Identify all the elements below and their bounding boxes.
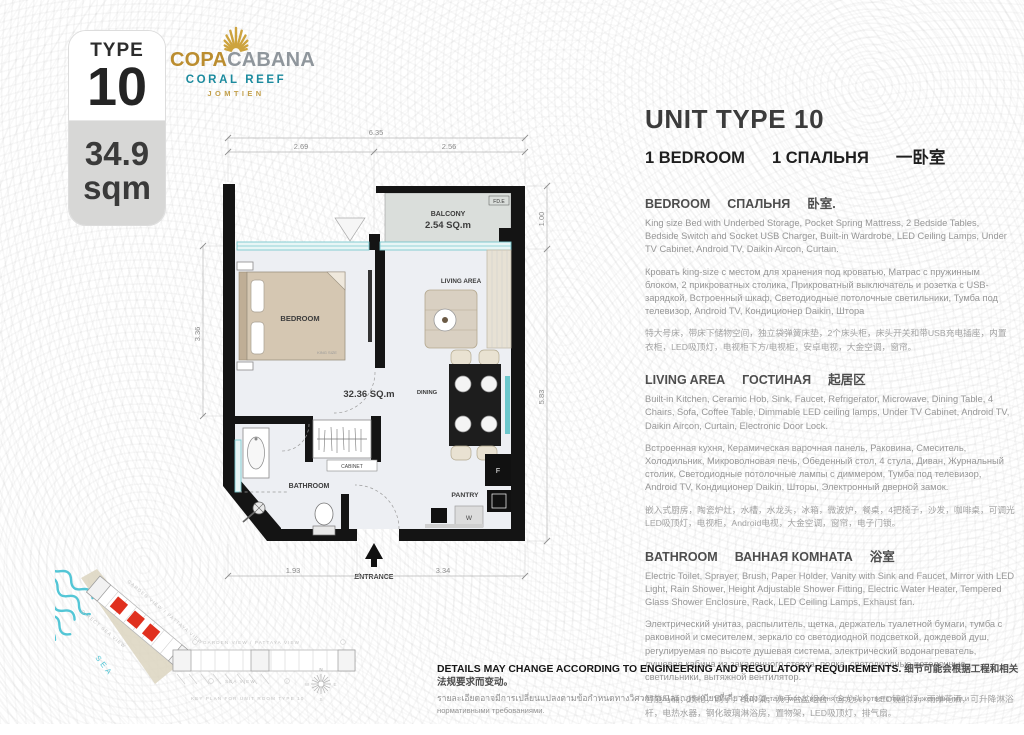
subtitle-ru: 1 СПАЛЬНЯ xyxy=(772,149,869,167)
floor-plan: BALCONY 2.54 SQ.m FD.E BEDROOM KING SIZE… xyxy=(193,124,565,598)
section-bedroom: BEDROOMСПАЛЬНЯ卧室. King size Bed with Und… xyxy=(645,193,1015,354)
svg-text:S: S xyxy=(319,697,322,702)
svg-text:6.35: 6.35 xyxy=(369,128,384,137)
badge-type-number: 10 xyxy=(69,62,165,113)
svg-text:3.34: 3.34 xyxy=(436,566,451,575)
compass-icon: N E S W xyxy=(305,667,337,702)
svg-text:2.69: 2.69 xyxy=(294,142,309,151)
microwave xyxy=(487,490,511,512)
living-text-zh: 嵌入式厨房，陶瓷炉灶，水槽，水龙头，冰箱，微波炉，餐桌，4把椅子，沙发，咖啡桌，… xyxy=(645,504,1015,531)
unit-info: UNIT TYPE 10 1 BEDROOM1 СПАЛЬНЯ一卧室 BEDRO… xyxy=(645,104,1015,735)
marker-circle xyxy=(341,640,346,645)
key-plan: SEA xyxy=(55,556,400,718)
heading-zh: 浴室 xyxy=(870,550,895,564)
pantry-box xyxy=(431,508,447,523)
keyplan-caption: KEY PLAN FOR UNIT ROOM TYPE 10 xyxy=(191,696,304,701)
ac-ledge xyxy=(335,218,365,241)
floor-drain-label: FD.E xyxy=(493,199,505,205)
subtitle-zh: 一卧室 xyxy=(896,149,946,167)
heading-zh: 起居区 xyxy=(828,373,866,387)
svg-text:5.83: 5.83 xyxy=(537,390,546,405)
balcony-area-label: 2.54 SQ.m xyxy=(425,220,471,231)
unit-type-badge: TYPE 10 34.9 sqm xyxy=(68,30,166,226)
dining-label: DINING xyxy=(417,390,438,396)
svg-text:1.00: 1.00 xyxy=(537,212,546,227)
living-text-ru: Встроенная кухня, Керамическая варочная … xyxy=(645,442,1015,495)
section-bedroom-heading: BEDROOMСПАЛЬНЯ卧室. xyxy=(645,193,1015,212)
copacabana-logo: COPACABANA CORAL REEF JOMTIEN xyxy=(170,26,302,98)
unit-subtitle: 1 BEDROOM1 СПАЛЬНЯ一卧室 xyxy=(645,144,1015,168)
marker-circle xyxy=(285,679,290,684)
bathroom-text-en: Electric Toilet, Sprayer, Brush, Paper H… xyxy=(645,570,1015,610)
svg-text:W: W xyxy=(305,682,310,687)
brochure-page: TYPE 10 34.9 sqm COPACABANA xyxy=(0,0,1024,724)
king-size-label: KING SIZE xyxy=(317,350,337,355)
brand-location: JOMTIEN xyxy=(170,89,302,98)
heading-ru: ВАННАЯ КОМНАТА xyxy=(735,550,853,564)
disclaimer-en: DETAILS MAY CHANGE ACCORDING TO ENGINEER… xyxy=(437,664,901,675)
svg-text:E: E xyxy=(333,682,336,687)
vanity-sink xyxy=(243,428,269,478)
subtitle-en: 1 BEDROOM xyxy=(645,149,745,167)
disclaimer-th: รายละเอียดอาจมีการเปลี่ยนแปลงตามข้อกำหนด… xyxy=(437,693,758,703)
badge-type-section: TYPE 10 xyxy=(69,31,165,121)
svg-text:3.36: 3.36 xyxy=(193,327,202,342)
pantry-counter xyxy=(425,524,483,528)
kitchen-cabinet xyxy=(487,250,511,348)
brand-name: COPACABANA xyxy=(170,50,302,70)
tv-panel xyxy=(368,270,372,342)
marker-circle xyxy=(209,679,214,684)
cabinet-label: CABINET xyxy=(341,464,363,470)
page-title: UNIT TYPE 10 xyxy=(645,104,1015,135)
heading-zh: 卧室. xyxy=(807,197,835,211)
fridge-letter: F xyxy=(496,468,500,475)
balcony-label: BALCONY xyxy=(431,211,466,218)
badge-area-unit: sqm xyxy=(69,171,165,205)
heading-ru: СПАЛЬНЯ xyxy=(727,197,790,211)
disclaimer: DETAILS MAY CHANGE ACCORDING TO ENGINEER… xyxy=(437,663,1019,715)
building-horizontal-wing xyxy=(173,650,355,684)
toilet xyxy=(313,503,335,535)
bedroom-text-ru: Кровать king-size с местом для хранения … xyxy=(645,266,1015,319)
bathroom-label: BATHROOM xyxy=(289,483,330,490)
heading-en: BATHROOM xyxy=(645,550,718,564)
garden-view-label: GARDEN VIEW / PATTAYA VIEW xyxy=(203,640,300,645)
living-text-en: Built-in Kitchen, Ceramic Hob, Sink, Fau… xyxy=(645,393,1015,433)
coffee-table xyxy=(434,309,456,331)
badge-area-value: 34.9 xyxy=(69,137,165,171)
section-living: LIVING AREAГОСТИНАЯ起居区 Built-in Kitchen,… xyxy=(645,369,1015,530)
badge-area-section: 34.9 sqm xyxy=(69,121,165,224)
pantry-label: PANTRY xyxy=(451,492,479,499)
brand-cabana: CABANA xyxy=(227,49,315,71)
brand-copa: COPA xyxy=(170,49,227,71)
svg-text:2.56: 2.56 xyxy=(442,142,457,151)
sea-view-label: SEA VIEW xyxy=(225,679,256,684)
brand-subtitle: CORAL REEF xyxy=(170,74,302,86)
unit-area-label: 32.36 SQ.m xyxy=(343,389,394,400)
section-living-heading: LIVING AREAГОСТИНАЯ起居区 xyxy=(645,369,1015,388)
washer-letter: W xyxy=(466,515,473,522)
bedroom-label: BEDROOM xyxy=(280,314,319,323)
section-bathroom-heading: BATHROOMВАННАЯ КОМНАТА浴室 xyxy=(645,546,1015,565)
sea-label: SEA xyxy=(93,654,115,678)
heading-en: LIVING AREA xyxy=(645,373,725,387)
heading-en: BEDROOM xyxy=(645,197,710,211)
bedroom-text-zh: 特大号床，带床下储物空间，独立袋弹簧床垫，2个床头柜，床头开关和带USB充电插座… xyxy=(645,327,1015,354)
bedroom-text-en: King size Bed with Underbed Storage, Poc… xyxy=(645,217,1015,257)
heading-ru: ГОСТИНАЯ xyxy=(742,373,811,387)
living-area-label: LIVING AREA xyxy=(441,278,482,285)
svg-text:N: N xyxy=(319,667,322,672)
dining-set xyxy=(449,350,510,460)
